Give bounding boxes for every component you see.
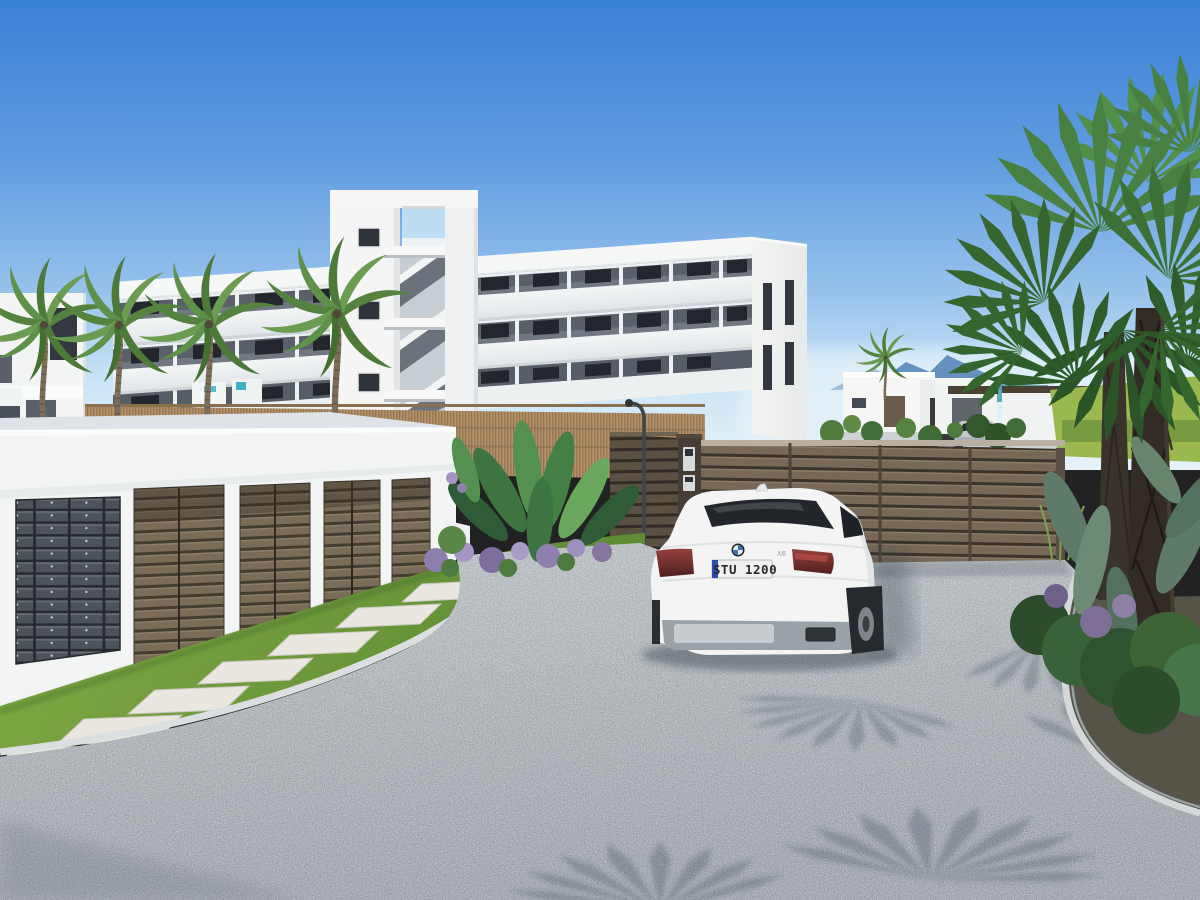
corner-shrub [438,526,466,554]
exterior-render-image: X6 STU 1200 [0,0,1200,900]
suv-taillight-right [792,549,834,574]
suv-taillight-left [656,549,694,577]
mailbox-panel [16,497,120,664]
model-badge: X6 [777,550,787,558]
suv-exhaust [806,628,835,641]
suv-skid-plate [674,624,774,643]
suv-wheel-left [652,600,660,644]
intercom-panels [683,447,695,491]
license-plate: STU 1200 [712,560,777,578]
render-stage: X6 STU 1200 [0,0,1200,900]
license-plate-text: STU 1200 [713,562,777,577]
bmw-roundel-icon [732,544,745,557]
building-gable-end [752,237,807,446]
